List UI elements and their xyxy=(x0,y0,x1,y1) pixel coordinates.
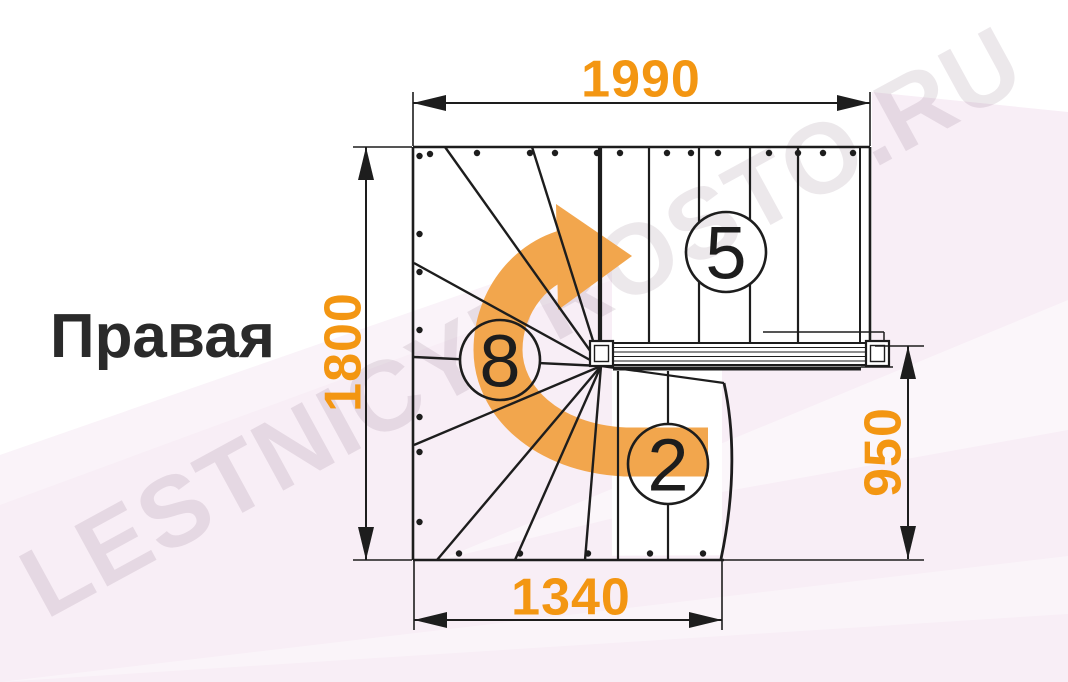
dimension-top-width-value: 1990 xyxy=(581,51,701,109)
newel-post-right xyxy=(866,341,889,366)
dimension-bottom-width-value: 1340 xyxy=(511,569,631,627)
upper-flight-count-label: 5 xyxy=(705,212,746,295)
dimension-right-height-value: 950 xyxy=(855,407,913,497)
orientation-title: Правая xyxy=(50,302,275,371)
handrail xyxy=(590,341,893,369)
lower-flight-count-label: 2 xyxy=(647,424,688,507)
dimension-left-height-value: 1800 xyxy=(315,292,373,412)
newel-post-left xyxy=(590,341,613,366)
staircase-plan-drawing: LESTNICYPROSTO.RU xyxy=(0,0,1068,682)
winder-count-label: 8 xyxy=(479,320,520,403)
